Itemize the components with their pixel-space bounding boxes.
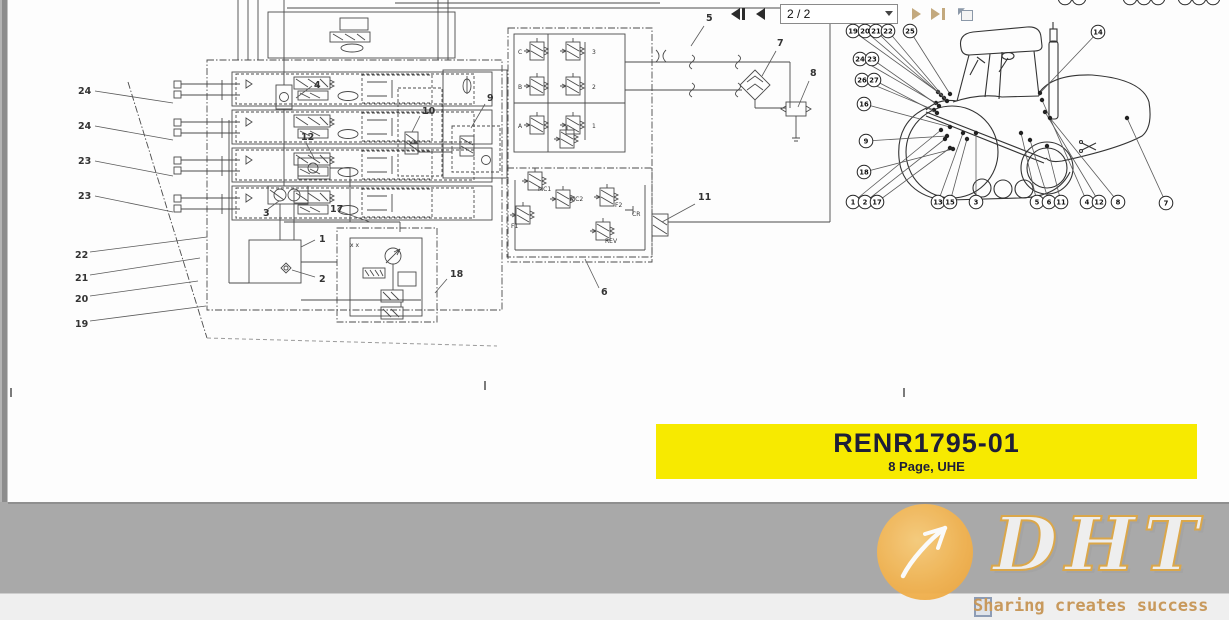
svg-text:F1: F1 xyxy=(511,223,518,230)
svg-text:8: 8 xyxy=(810,68,817,79)
chevron-down-icon xyxy=(885,11,893,16)
svg-text:3: 3 xyxy=(263,208,270,219)
svg-text:4: 4 xyxy=(1085,198,1090,206)
svg-text:10: 10 xyxy=(422,106,436,117)
svg-text:B: B xyxy=(518,84,522,91)
next-page-button[interactable] xyxy=(906,4,926,24)
last-page-icon xyxy=(931,8,940,20)
svg-text:CR: CR xyxy=(632,211,640,218)
crop-mark-left xyxy=(10,388,12,397)
svg-text:17: 17 xyxy=(872,198,882,206)
pdf-viewer-window: 24242323222120194123171218109561178 CBA3… xyxy=(0,0,1229,620)
svg-text:C: C xyxy=(518,49,522,56)
svg-text:18: 18 xyxy=(859,168,869,176)
transmission-control-group xyxy=(507,62,830,257)
svg-text:F2: F2 xyxy=(615,202,622,209)
crop-mark-right xyxy=(903,388,905,397)
svg-text:23: 23 xyxy=(78,191,91,202)
svg-text:MC2: MC2 xyxy=(570,196,583,203)
svg-text:6: 6 xyxy=(601,287,608,298)
tractor-callouts: 1920212225242326271691812171315356114128… xyxy=(846,0,1220,210)
last-page-button[interactable] xyxy=(928,4,948,24)
svg-text:15: 15 xyxy=(945,198,955,206)
svg-text:9: 9 xyxy=(864,137,869,145)
svg-text:14: 14 xyxy=(1093,28,1103,36)
svg-text:2: 2 xyxy=(592,84,596,91)
svg-text:20: 20 xyxy=(75,294,89,305)
media-subtitle: 8 Page, UHE xyxy=(888,459,965,474)
svg-text:11: 11 xyxy=(1056,198,1066,206)
svg-text:21: 21 xyxy=(75,273,88,284)
svg-text:23: 23 xyxy=(867,55,877,63)
svg-text:5: 5 xyxy=(1035,198,1040,206)
svg-text:2: 2 xyxy=(863,198,868,206)
svg-text:A: A xyxy=(518,123,523,130)
svg-text:5: 5 xyxy=(706,13,713,24)
svg-text:16: 16 xyxy=(859,100,869,108)
svg-text:23: 23 xyxy=(78,156,91,167)
window-box-icon xyxy=(961,10,973,21)
dht-logo-circle xyxy=(877,504,973,600)
svg-text:1: 1 xyxy=(319,234,326,245)
svg-text:9: 9 xyxy=(487,93,494,104)
hydraulic-schematic-diagram: 24242323222120194123171218109561178 CBA3… xyxy=(0,0,1229,362)
svg-text:19: 19 xyxy=(75,319,88,330)
first-page-button[interactable] xyxy=(728,4,748,24)
svg-text:7: 7 xyxy=(777,38,784,49)
svg-text:12: 12 xyxy=(1094,198,1104,206)
svg-text:1: 1 xyxy=(592,123,596,130)
svg-text:12: 12 xyxy=(301,132,314,143)
media-label-banner: RENR1795-01 8 Page, UHE xyxy=(656,424,1197,479)
first-page-bar xyxy=(742,8,745,20)
svg-text:26: 26 xyxy=(857,76,867,84)
watermark-slogan: Sharing creates success xyxy=(973,596,1208,616)
page-number-combobox[interactable]: 2 / 2 xyxy=(780,4,898,24)
svg-text:25: 25 xyxy=(905,27,915,35)
dht-logo-text: DHT xyxy=(993,508,1206,582)
svg-text:REV: REV xyxy=(605,238,618,245)
svg-text:11: 11 xyxy=(698,192,711,203)
svg-text:18: 18 xyxy=(450,269,464,280)
snapshot-window-icon[interactable]: ◤ xyxy=(958,7,972,20)
svg-text:x x: x x xyxy=(350,242,359,249)
svg-text:3: 3 xyxy=(592,49,596,56)
svg-text:24: 24 xyxy=(78,121,92,132)
last-page-bar xyxy=(942,8,945,20)
svg-text:13: 13 xyxy=(933,198,943,206)
svg-text:3: 3 xyxy=(974,198,979,206)
svg-text:17: 17 xyxy=(330,204,343,215)
svg-text:8: 8 xyxy=(1116,198,1121,206)
media-number: RENR1795-01 xyxy=(833,430,1020,457)
previous-page-icon xyxy=(756,8,765,20)
next-page-icon xyxy=(912,8,921,20)
svg-text:22: 22 xyxy=(75,250,88,261)
svg-text:24: 24 xyxy=(855,55,865,63)
svg-text:24: 24 xyxy=(78,86,92,97)
schematic-valve-labels: CBA321MC1MC2F1F2CRREVx x xyxy=(350,49,640,249)
svg-text:4: 4 xyxy=(314,80,321,91)
first-page-icon xyxy=(731,8,740,20)
svg-text:1: 1 xyxy=(851,198,856,206)
svg-text:22: 22 xyxy=(883,27,893,35)
pilot-valve-group xyxy=(398,70,507,178)
page-navigation-controls: 2 / 2 ◤ xyxy=(728,0,972,27)
svg-text:21: 21 xyxy=(871,27,881,35)
crop-mark-center xyxy=(484,381,486,390)
svg-text:20: 20 xyxy=(860,27,870,35)
page-indicator: 2 / 2 xyxy=(787,7,810,21)
svg-text:7: 7 xyxy=(1164,199,1169,207)
svg-text:MC1: MC1 xyxy=(538,186,551,193)
arrow-up-right-icon xyxy=(877,504,973,600)
svg-text:27: 27 xyxy=(869,76,879,84)
pump-and-tank-group xyxy=(229,85,421,300)
svg-text:6: 6 xyxy=(1047,198,1052,206)
previous-page-button[interactable] xyxy=(750,4,770,24)
svg-text:2: 2 xyxy=(319,274,326,285)
svg-text:19: 19 xyxy=(848,27,858,35)
